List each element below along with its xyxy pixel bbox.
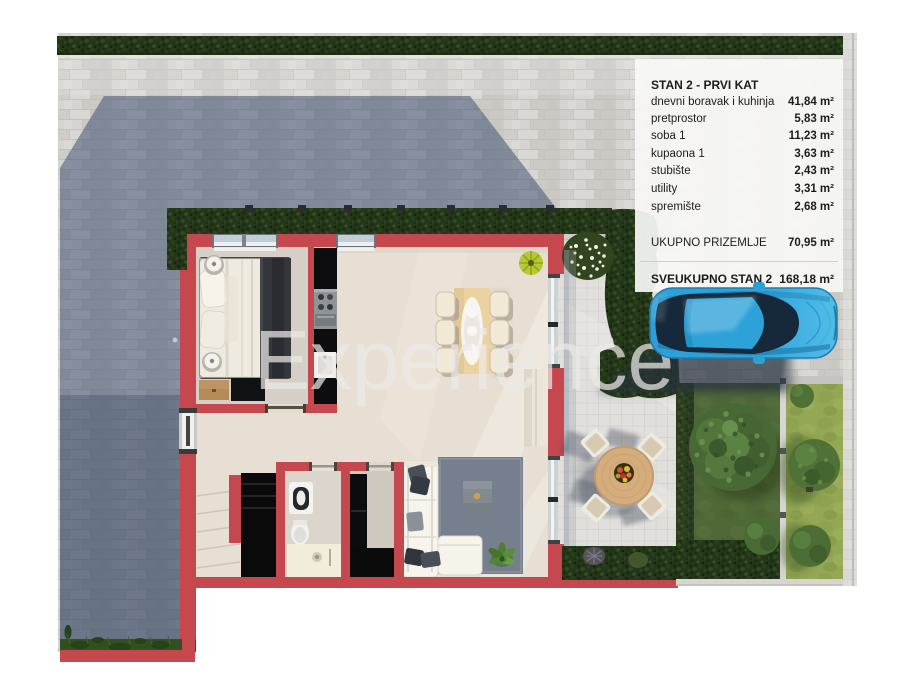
svg-text:11,23 m²: 11,23 m² bbox=[789, 130, 835, 142]
svg-text:5,83 m²: 5,83 m² bbox=[794, 113, 834, 125]
svg-text:STAN 2 - PRVI KAT: STAN 2 - PRVI KAT bbox=[651, 78, 759, 92]
svg-text:spremište: spremište bbox=[651, 201, 701, 213]
svg-text:dnevni boravak i kuhinja: dnevni boravak i kuhinja bbox=[651, 96, 775, 108]
svg-text:utility: utility bbox=[651, 183, 677, 195]
svg-text:2,68 m²: 2,68 m² bbox=[794, 201, 834, 213]
svg-text:UKUPNO PRIZEMLJE: UKUPNO PRIZEMLJE bbox=[651, 237, 767, 249]
svg-text:pretprostor: pretprostor bbox=[651, 113, 707, 125]
svg-text:2,43 m²: 2,43 m² bbox=[794, 165, 834, 177]
svg-text:70,95 m²: 70,95 m² bbox=[788, 237, 834, 249]
svg-text:168,18 m²: 168,18 m² bbox=[779, 272, 834, 286]
svg-text:3,63 m²: 3,63 m² bbox=[794, 148, 834, 160]
svg-text:41,84 m²: 41,84 m² bbox=[788, 96, 834, 108]
svg-text:soba 1: soba 1 bbox=[651, 130, 686, 142]
svg-text:stubište: stubište bbox=[651, 165, 691, 177]
svg-text:3,31 m²: 3,31 m² bbox=[794, 183, 834, 195]
svg-text:Experience: Experience bbox=[254, 313, 674, 407]
svg-text:kupaona 1: kupaona 1 bbox=[651, 148, 705, 160]
